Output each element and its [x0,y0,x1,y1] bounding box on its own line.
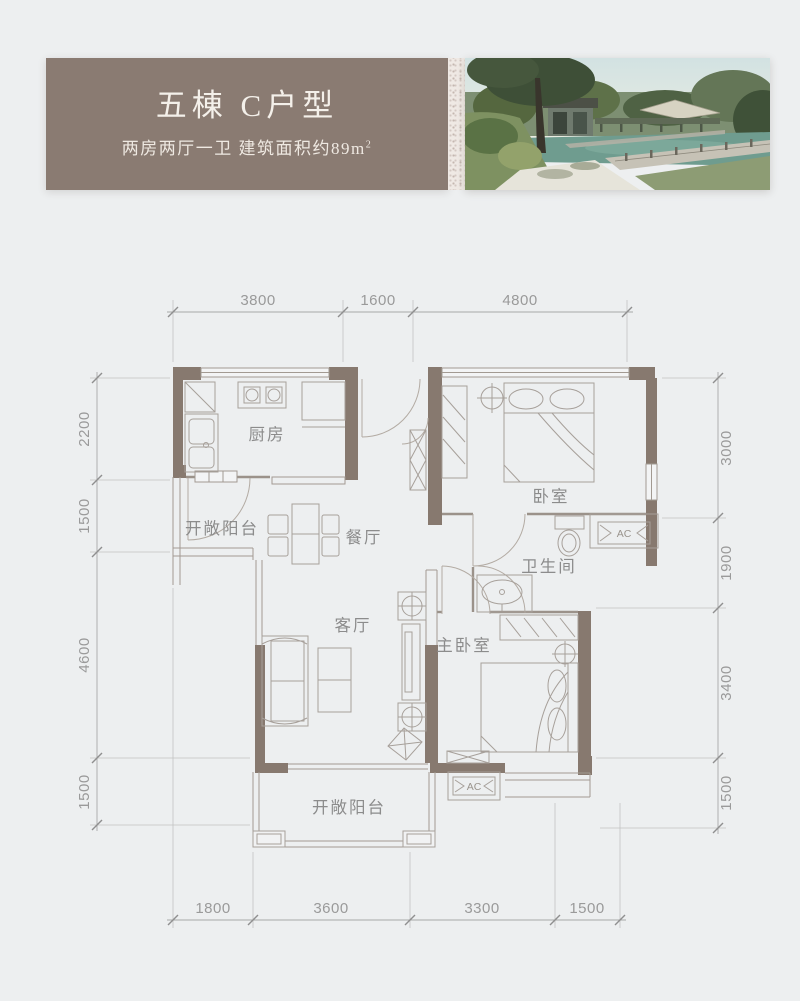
dim-label: 1500 [76,498,93,533]
toilet-icon [555,516,584,556]
bed-icon [504,383,594,482]
dim-label: 1600 [360,292,395,309]
floor-lamp-icon [398,592,426,620]
dimensions-left: 2200 1500 4600 1500 [76,372,250,831]
bed-icon [481,663,578,752]
walls [173,367,657,775]
plant-icon [388,728,422,760]
room-label-living: 客厅 [335,616,372,635]
dim-label: 3300 [464,900,499,917]
dim-label: 3600 [313,900,348,917]
tv-cabinet-icon [402,624,420,700]
dim-label: 3000 [718,430,735,465]
ac-label: AC [467,781,482,793]
dim-label: 4800 [502,292,537,309]
room-label-balcony-bottom: 开敞阳台 [312,798,386,817]
bedroom-furniture [442,383,594,482]
ceiling-lamp-icon [477,383,507,413]
room-label-dining: 餐厅 [346,528,383,547]
ac-platform-bottom: AC [448,772,500,800]
wardrobe-icon [500,615,578,640]
floor-lamp-icon [398,703,426,731]
dim-label: 1800 [195,900,230,917]
room-label-master-bedroom: 主卧室 [436,636,492,655]
dimensions-top: 3800 1600 4800 [167,292,633,362]
stove-icon [238,382,286,408]
room-label-kitchen: 厨房 [249,425,286,444]
kitchen-sink-icon [185,414,218,472]
dim-label: 1900 [718,545,735,580]
dim-label: 1500 [76,774,93,809]
room-label-bedroom: 卧室 [533,487,570,506]
dim-label: 3400 [718,665,735,700]
dim-label: 1500 [718,775,735,810]
dimensions-right: 3000 1900 3400 1500 [596,372,735,834]
floor-plan: 3800 1600 4800 1800 3600 3300 1500 2200 … [0,0,800,1001]
dim-label: 3800 [240,292,275,309]
ac-label: AC [617,528,632,540]
dim-label: 2200 [76,411,93,446]
room-label-balcony-top: 开敞阳台 [185,519,259,538]
dining-set [268,504,339,564]
room-label-bathroom: 卫生间 [521,557,577,576]
sofa-icon [262,636,308,726]
dim-label: 1500 [569,900,604,917]
dim-label: 4600 [76,637,93,672]
wardrobe-icon [442,386,467,478]
bench-icon [447,751,489,763]
